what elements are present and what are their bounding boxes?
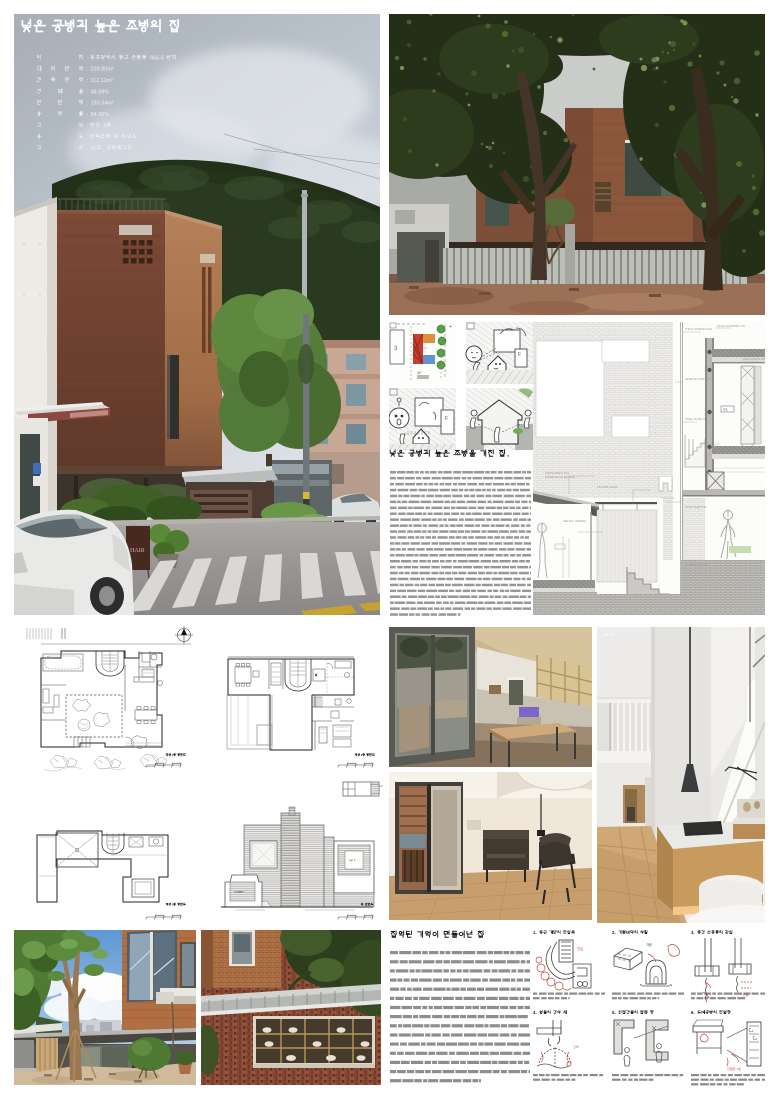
svg-text:진입: 진입 [577,946,583,951]
svg-text:INSULATION T135: INSULATION T135 [743,357,765,361]
svg-text:RC: RC [91,146,99,152]
svg-text::: : [87,67,89,73]
svg-text::: : [87,146,89,152]
svg-text:HAIR: HAIR [130,548,145,554]
svg-text:EXT BRICK PAVING: EXT BRICK PAVING [685,563,709,567]
svg-text:GL: GL [723,408,728,412]
svg-text::: : [87,135,89,141]
svg-text:,: , [102,146,104,152]
svg-text::: : [87,112,89,118]
svg-text:+: + [449,324,452,330]
svg-text:F: F [445,416,448,422]
svg-text:WOOD FLOORING T15: WOOD FLOORING T15 [717,324,745,328]
svg-text:228.90m²: 228.90m² [91,67,114,73]
svg-text:1.: 1. [533,930,537,935]
svg-text:CONC SLAB T150: CONC SLAB T150 [685,505,707,509]
svg-text:112.11m²: 112.11m² [91,78,114,84]
svg-text:3.: 3. [691,930,695,935]
svg-text:CEILING: VARNISH: CEILING: VARNISH [563,519,586,523]
svg-text:THK190 BRICK TILE: THK190 BRICK TILE [545,471,570,475]
svg-text:top 1: top 1 [349,858,356,862]
svg-text:1B 7B: 1B 7B [603,632,615,637]
svg-text::: : [87,123,89,129]
svg-text:1F: 1F [417,370,422,375]
svg-text:WATERPROOF MORTAR: WATERPROOF MORTAR [545,475,575,479]
svg-text:2.: 2. [612,930,616,935]
svg-text::: : [87,55,89,61]
svg-text::: : [87,89,89,95]
svg-text:1: 1 [172,753,174,757]
svg-text:THK24 COMPLEX PNL: THK24 COMPLEX PNL [685,327,713,331]
svg-text:2: 2 [361,753,363,757]
svg-text:간색: 간색 [573,1044,579,1049]
svg-text::: : [87,78,89,84]
svg-text:F: F [518,352,521,358]
svg-text:.: . [507,450,509,459]
svg-text:3: 3 [172,903,174,907]
svg-text:3: 3 [103,123,106,129]
svg-text:진열창, 5단: 진열창, 5단 [727,1066,742,1071]
svg-text::: : [87,101,89,107]
svg-text:6.: 6. [691,1010,695,1015]
svg-text:T24 PAIR GLASS: T24 PAIR GLASS [597,485,618,489]
svg-text:가림: 가림 [646,942,652,947]
svg-text:193.34m²: 193.34m² [91,101,114,107]
svg-text:1B 7B: 1B 7B [395,777,407,782]
svg-text:665-5: 665-5 [150,55,164,61]
svg-text:LOBBY: LOBBY [234,890,244,894]
svg-text:STEEL PLATE T9: STEEL PLATE T9 [685,417,706,421]
svg-text:연통: 연통 [743,992,749,997]
svg-text:5.: 5. [612,1010,616,1015]
svg-text:4.: 4. [533,1010,537,1015]
svg-text:84.46%: 84.46% [91,112,110,118]
svg-text:LEVELING MORTAR: LEVELING MORTAR [685,377,710,381]
svg-text:48.98%: 48.98% [91,89,110,95]
